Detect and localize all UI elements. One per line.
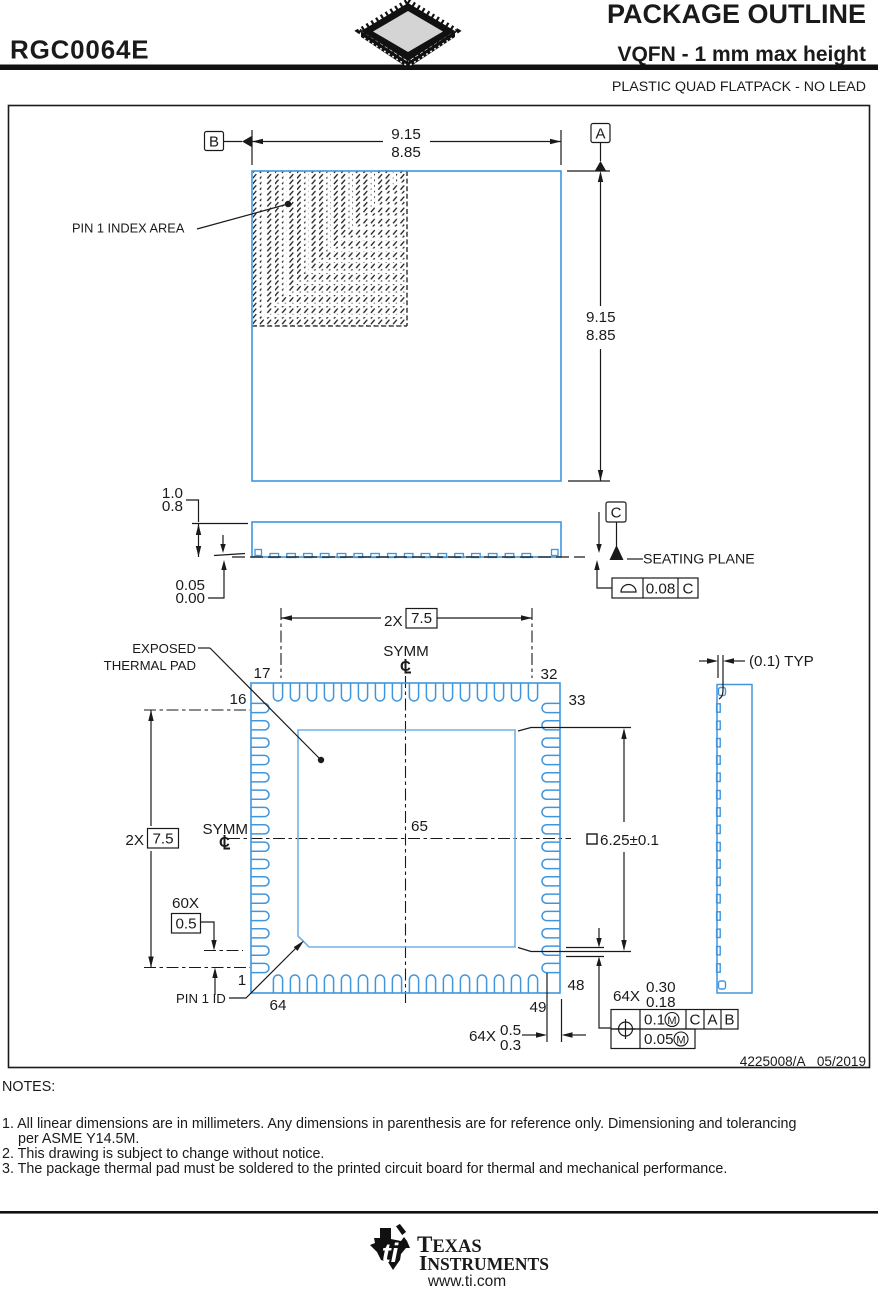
svg-text:33: 33: [569, 692, 586, 709]
svg-text:A: A: [707, 1012, 718, 1029]
svg-text:www.ti.com: www.ti.com: [427, 1273, 506, 1288]
svg-text:PACKAGE OUTLINE: PACKAGE OUTLINE: [607, 0, 866, 29]
svg-text:49: 49: [530, 999, 547, 1016]
svg-text:PLASTIC QUAD FLATPACK - NO LEA: PLASTIC QUAD FLATPACK - NO LEAD: [612, 79, 866, 95]
svg-text:B: B: [724, 1012, 734, 1029]
svg-text:0.3: 0.3: [500, 1037, 521, 1054]
svg-text:1. All linear dimensions are i: 1. All linear dimensions are in millimet…: [2, 1116, 796, 1132]
svg-text:0.18: 0.18: [646, 994, 676, 1011]
svg-text:A: A: [595, 126, 605, 143]
svg-text:0.5: 0.5: [175, 916, 196, 933]
svg-text:65: 65: [411, 818, 428, 835]
svg-text:THERMAL PAD: THERMAL PAD: [104, 658, 196, 673]
svg-text:60X: 60X: [172, 895, 199, 912]
svg-text:SEATING PLANE: SEATING PLANE: [643, 552, 755, 568]
svg-text:16: 16: [230, 691, 247, 708]
svg-text:9.15: 9.15: [586, 309, 616, 326]
svg-text:0.8: 0.8: [162, 498, 183, 515]
svg-text:1: 1: [238, 972, 246, 989]
svg-text:per ASME Y14.5M.: per ASME Y14.5M.: [18, 1131, 139, 1147]
svg-text:C: C: [683, 581, 694, 598]
svg-text:4225008/A 05/2019: 4225008/A 05/2019: [740, 1054, 866, 1069]
svg-text:0.00: 0.00: [175, 590, 205, 607]
svg-text:C: C: [611, 505, 622, 522]
svg-text:RGC0064E: RGC0064E: [10, 35, 149, 65]
svg-text:8.85: 8.85: [586, 327, 616, 344]
svg-text:8.85: 8.85: [391, 144, 421, 161]
svg-text:64X: 64X: [613, 988, 640, 1005]
svg-text:7.5: 7.5: [411, 610, 432, 627]
svg-text:48: 48: [568, 977, 585, 994]
svg-text:0.05: 0.05: [644, 1031, 674, 1048]
svg-text:32: 32: [541, 666, 558, 683]
svg-text:M: M: [676, 1035, 685, 1047]
svg-text:2X: 2X: [384, 613, 403, 630]
svg-text:B: B: [209, 134, 219, 151]
svg-text:0.08: 0.08: [646, 581, 676, 598]
svg-text:64X: 64X: [469, 1028, 496, 1045]
svg-text:ti: ti: [382, 1238, 399, 1268]
svg-text:C: C: [690, 1012, 701, 1029]
svg-text:PIN 1 INDEX AREA: PIN 1 INDEX AREA: [72, 221, 185, 236]
svg-text:PIN 1 ID: PIN 1 ID: [176, 991, 226, 1006]
svg-text:(0.1) TYP: (0.1) TYP: [749, 653, 814, 670]
svg-text:64: 64: [270, 997, 287, 1014]
svg-text:EXPOSED: EXPOSED: [132, 641, 196, 656]
svg-text:0.1: 0.1: [644, 1012, 665, 1029]
svg-text:6.25±0.1: 6.25±0.1: [600, 832, 659, 849]
svg-text:M: M: [667, 1015, 676, 1027]
svg-text:2. This drawing is subject to: 2. This drawing is subject to change wit…: [2, 1146, 324, 1162]
svg-text:7.5: 7.5: [152, 831, 173, 848]
svg-text:3. The package thermal pad mus: 3. The package thermal pad must be solde…: [2, 1161, 727, 1177]
svg-text:VQFN - 1 mm max height: VQFN - 1 mm max height: [617, 43, 866, 66]
svg-text:NOTES:: NOTES:: [2, 1079, 55, 1095]
svg-text:2X: 2X: [125, 832, 144, 849]
svg-text:INSTRUMENTS: INSTRUMENTS: [419, 1251, 549, 1275]
svg-text:9.15: 9.15: [391, 126, 421, 143]
svg-text:17: 17: [254, 665, 271, 682]
